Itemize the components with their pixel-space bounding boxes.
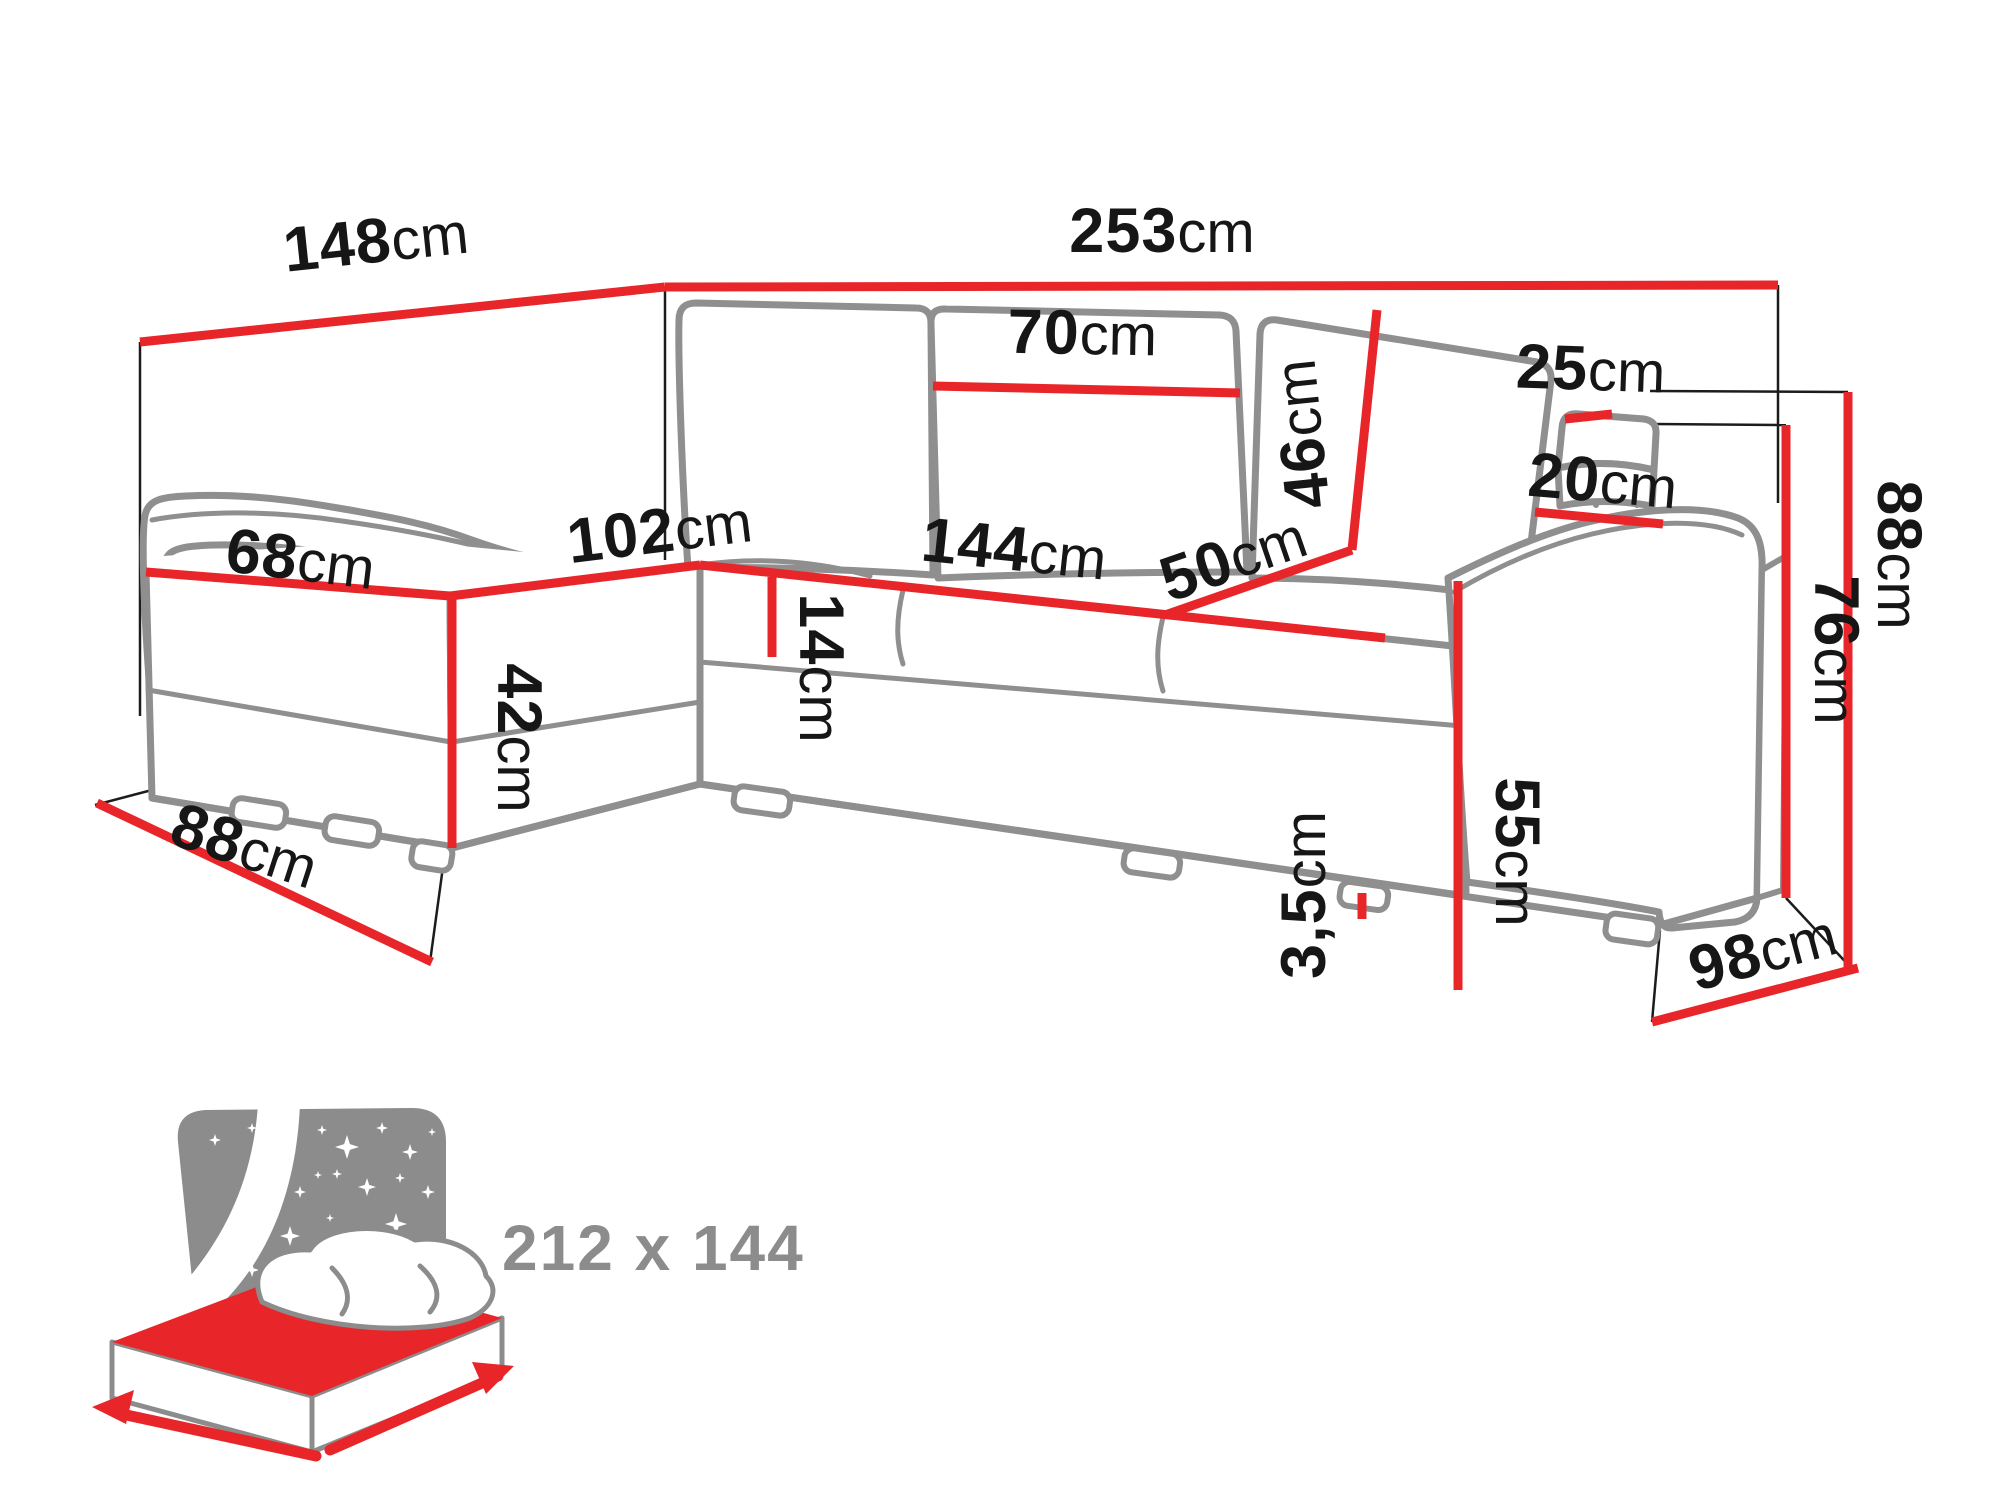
sofa-diagram-canvas: 148cm 253cm 70cm 46cm 25cm 20cm 68cm 102… [0, 0, 2000, 1500]
foot [1122, 847, 1181, 879]
furniture-dimension-diagram: 148cm 253cm 70cm 46cm 25cm 20cm 68cm 102… [0, 0, 2000, 1500]
foot [732, 785, 791, 817]
dim-line-armrest-top-pad-width [1565, 414, 1612, 419]
star-icon [176, 1256, 188, 1268]
dim-label-seat-cushion-thickness: 14cm [786, 593, 856, 742]
dim-line-back-width-left [140, 287, 665, 342]
dim-label-armrest-front-height: 55cm [1482, 777, 1552, 926]
sleeping-area-icon: 212 x 144 [92, 1104, 805, 1456]
foot [1604, 912, 1659, 945]
sleeping-area-size-label: 212 x 144 [502, 1212, 805, 1284]
dim-line-back-width-total [665, 285, 1778, 287]
height-88-projection-line [1650, 391, 1848, 392]
dim-label-seat-height: 42cm [484, 663, 554, 812]
height-76-projection-line [1653, 424, 1786, 425]
dim-label-total-height: 88cm [1864, 480, 1934, 629]
dim-label-armrest-height: 76cm [1801, 575, 1871, 724]
dim-label-foot-height: 3,5cm [1269, 811, 1339, 979]
foot [323, 815, 380, 847]
foot [410, 840, 454, 872]
dim-label-armrest-top-pad-width: 25cm [1515, 331, 1667, 406]
dim-label-back-width-left: 148cm [280, 197, 472, 286]
dim-label-back-cushion-width: 70cm [1007, 297, 1158, 370]
dim-label-back-width-total: 253cm [1069, 196, 1254, 266]
